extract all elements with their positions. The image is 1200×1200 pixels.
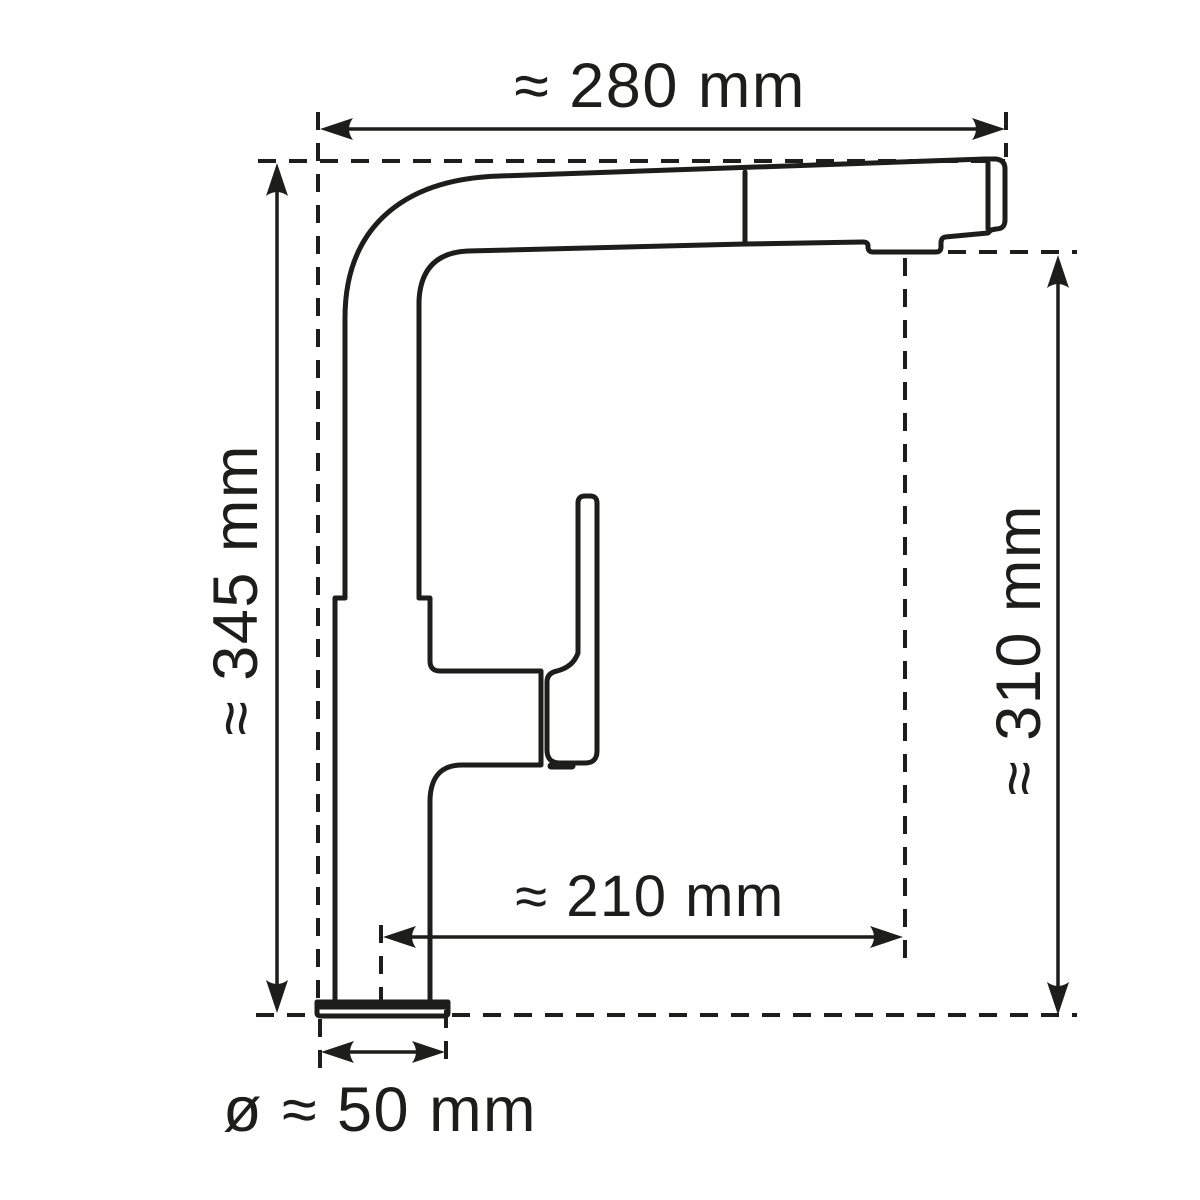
dimension-label-overall-height: ≈ 345 mm	[201, 444, 271, 736]
arrow-right-icon	[870, 926, 903, 948]
dimension-overall-width: ≈ 280 mm	[320, 51, 1005, 140]
dimension-label-spout-reach: ≈ 210 mm	[515, 864, 784, 929]
spout-outline	[345, 159, 1005, 598]
dimension-spout-reach: ≈ 210 mm	[383, 864, 903, 948]
arrow-right-icon	[972, 118, 1005, 140]
arrow-right-icon	[412, 1041, 445, 1063]
body-outline	[335, 598, 541, 1001]
dimension-spout-height: ≈ 310 mm	[984, 255, 1069, 1015]
base-flange-outline	[317, 1002, 448, 1016]
technical-drawing-canvas: ≈ 280 mm ≈ 345 mm ≈ 310 mm ≈ 210 mm	[0, 0, 1200, 1200]
dimension-overall-height: ≈ 345 mm	[201, 163, 288, 1013]
arrow-left-icon	[383, 926, 416, 948]
handle-outline	[547, 496, 597, 763]
arrow-down-icon	[266, 980, 288, 1013]
dimension-label-overall-width: ≈ 280 mm	[514, 51, 806, 121]
arrow-up-icon	[1047, 255, 1069, 288]
arrow-left-icon	[320, 118, 353, 140]
dimension-label-base-diameter: ø ≈ 50 mm	[223, 1075, 537, 1145]
faucet-dimension-diagram: ≈ 280 mm ≈ 345 mm ≈ 310 mm ≈ 210 mm	[0, 0, 1200, 1200]
arrow-left-icon	[321, 1041, 354, 1063]
dimension-label-spout-height: ≈ 310 mm	[984, 504, 1054, 796]
dimension-base-diameter: ø ≈ 50 mm	[223, 1041, 537, 1145]
arrow-up-icon	[266, 163, 288, 196]
arrow-down-icon	[1047, 982, 1069, 1015]
